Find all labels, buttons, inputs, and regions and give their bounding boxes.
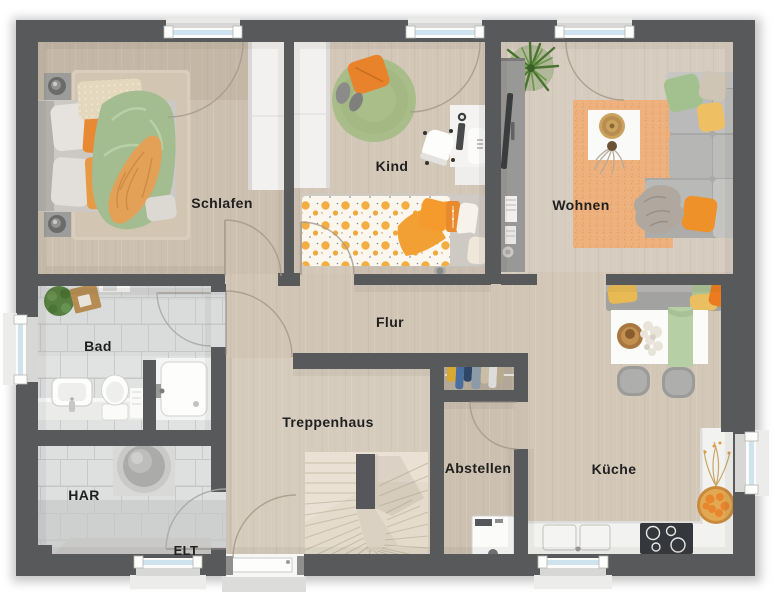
- svg-text:Schlafen: Schlafen: [191, 195, 253, 211]
- svg-text:Wohnen: Wohnen: [552, 197, 609, 213]
- svg-text:Küche: Küche: [592, 461, 637, 477]
- svg-text:Flur: Flur: [376, 314, 404, 330]
- svg-text:Treppenhaus: Treppenhaus: [282, 414, 374, 430]
- svg-text:Kind: Kind: [376, 158, 409, 174]
- svg-text:Abstellen: Abstellen: [445, 460, 512, 476]
- svg-text:Bad: Bad: [84, 338, 112, 354]
- svg-text:HAR: HAR: [68, 487, 100, 503]
- svg-text:ELT: ELT: [174, 543, 199, 558]
